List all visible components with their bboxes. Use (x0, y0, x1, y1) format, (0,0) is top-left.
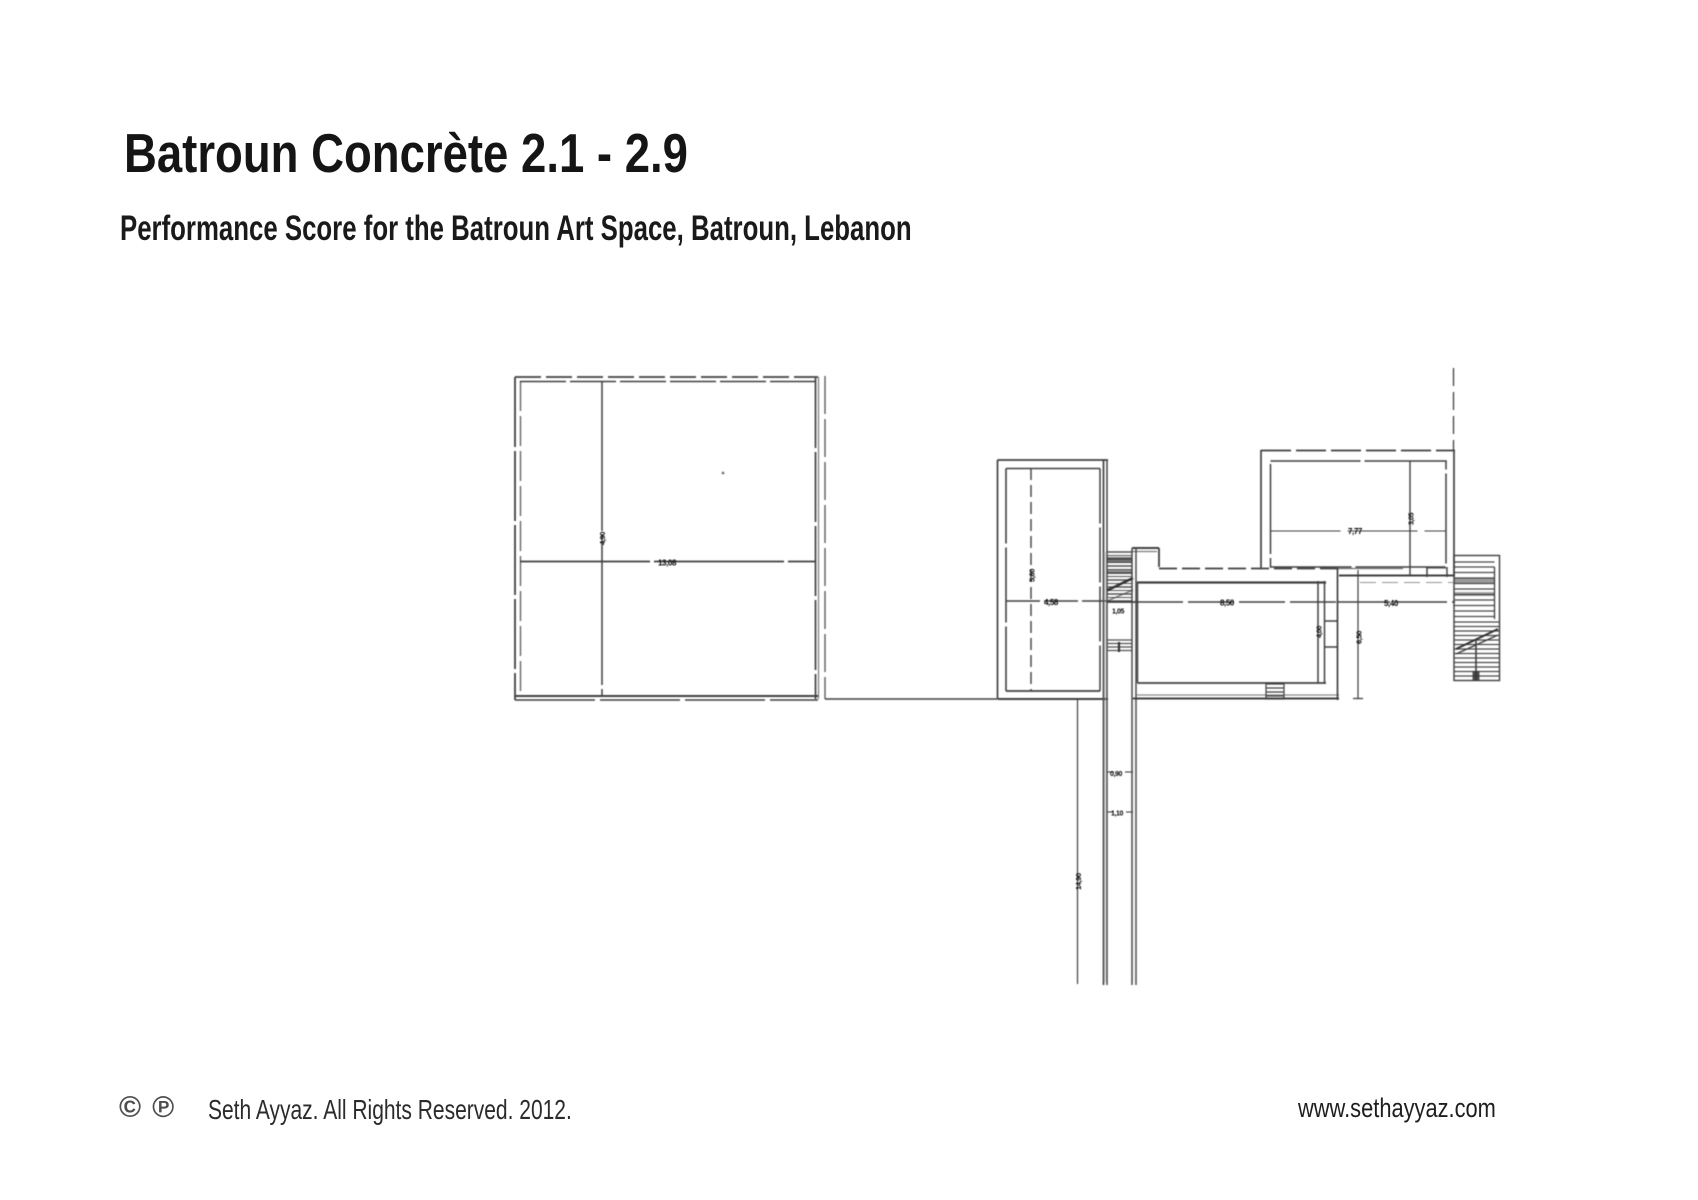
svg-text:7,77: 7,77 (1348, 527, 1363, 536)
svg-text:6,50: 6,50 (1355, 631, 1364, 644)
svg-text:4,58: 4,58 (1044, 598, 1059, 607)
svg-text:4,90: 4,90 (598, 532, 607, 545)
svg-text:1,05: 1,05 (1112, 609, 1125, 616)
svg-text:4,00: 4,00 (1317, 625, 1324, 638)
svg-text:14,90: 14,90 (1074, 873, 1083, 890)
svg-text:8,50: 8,50 (1220, 599, 1235, 608)
svg-text:5,80: 5,80 (1028, 569, 1037, 582)
svg-text:3,05: 3,05 (1409, 512, 1416, 525)
svg-text:13,08: 13,08 (658, 559, 677, 568)
svg-text:0,90: 0,90 (1110, 771, 1123, 778)
svg-text:5,40: 5,40 (1384, 599, 1399, 608)
svg-text:1,10: 1,10 (1111, 811, 1124, 818)
